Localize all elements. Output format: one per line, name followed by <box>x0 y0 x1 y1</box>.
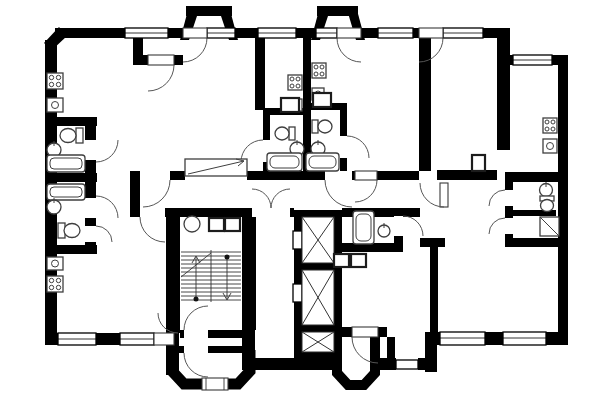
bottom-right-wall <box>485 332 503 345</box>
door-leaf <box>440 183 448 207</box>
bathroom-wall <box>505 238 568 247</box>
duct-box <box>334 254 349 267</box>
hall-wall <box>430 247 438 332</box>
stove <box>543 118 557 133</box>
door-swing-arc <box>337 38 361 62</box>
bottom-middle-wall <box>418 358 425 370</box>
bath-wall <box>45 245 97 254</box>
elevator-door-opening <box>293 284 302 302</box>
kitchen-sink <box>47 98 63 112</box>
bath-wall <box>85 182 96 198</box>
bath-wall <box>85 160 96 173</box>
stairwell-wall <box>208 330 242 338</box>
window <box>396 360 418 369</box>
vestibule-wall <box>208 346 243 353</box>
toilet-tank <box>289 127 295 140</box>
door-swing-arc <box>489 190 505 206</box>
bathroom-wall <box>505 206 513 218</box>
door-opening <box>85 198 96 218</box>
room-wall <box>387 337 395 370</box>
duct-box <box>472 155 485 171</box>
door-leaf <box>148 55 174 65</box>
floor-plan <box>0 0 600 400</box>
door-swing-arc <box>184 353 208 377</box>
door-swing-arc <box>148 65 174 91</box>
door-opening <box>140 208 165 217</box>
door-opening <box>85 226 96 242</box>
door-opening <box>184 330 208 338</box>
stove <box>47 73 63 89</box>
stairwell-wall <box>242 208 256 330</box>
vestibule-top-left-wall <box>174 55 183 65</box>
stove <box>312 63 326 78</box>
bath-wall <box>85 218 96 226</box>
bottom-wall <box>96 333 120 345</box>
hall-wall <box>420 238 445 247</box>
door-opening <box>184 346 208 353</box>
door-opening <box>505 218 513 234</box>
door-swing-arc <box>183 38 207 62</box>
bathtub <box>47 184 85 200</box>
duct-box <box>351 254 366 267</box>
stair-start-dot <box>194 297 199 302</box>
window <box>503 332 546 345</box>
double-door-arc <box>271 189 290 208</box>
bath-wall <box>85 117 96 140</box>
bottom-right-wall <box>546 332 568 345</box>
vestibule-wall <box>242 330 255 370</box>
bay2-side-wall <box>370 337 380 370</box>
door-opening <box>394 216 403 236</box>
elevator-wall <box>294 210 342 217</box>
step-block-wall <box>425 332 437 372</box>
stair-start-dot <box>225 255 230 260</box>
apartment-divider-wall <box>419 38 431 171</box>
corridor-wall <box>290 208 294 217</box>
door-swing-arc <box>96 196 118 218</box>
unit-divider-wall <box>255 38 265 110</box>
door-swing-arc <box>325 180 352 207</box>
duct-box <box>209 218 224 231</box>
bathroom-wall <box>505 182 513 190</box>
bath-cluster-wall <box>340 158 347 172</box>
bathroom-wall <box>505 172 568 182</box>
door-swing-arc <box>96 140 118 162</box>
door-swing-arc <box>489 218 505 234</box>
door-swing-arc <box>355 180 377 202</box>
corridor-wall <box>377 171 419 180</box>
bottom-wall <box>45 333 58 345</box>
terrace-door-leaf <box>154 333 174 345</box>
stove <box>47 276 63 292</box>
double-door-arc <box>252 189 271 208</box>
toilet-bowl <box>64 224 80 238</box>
door-opening <box>497 150 510 172</box>
room-divider-wall <box>497 38 510 150</box>
door-opening <box>85 140 96 160</box>
door-leaf <box>419 28 443 38</box>
duct-box <box>225 218 240 231</box>
room-wall <box>437 170 497 180</box>
right-wall <box>558 55 568 345</box>
elevator-wall <box>294 217 302 231</box>
kitchen-sink <box>543 139 557 153</box>
door-swing-arc <box>140 217 165 242</box>
door-swing-arc <box>96 226 112 242</box>
balcony-door-leaf <box>337 28 361 38</box>
door-swing-arc <box>403 216 423 236</box>
room-wall <box>341 327 352 337</box>
stairs-layer <box>181 250 241 302</box>
balcony-door-leaf <box>183 28 207 38</box>
double-door-opening <box>252 208 290 217</box>
elevator-wall <box>294 325 342 332</box>
top-wall <box>168 28 183 38</box>
corridor-end-wall <box>130 171 140 217</box>
toilet-bowl <box>275 127 289 140</box>
duct-box <box>281 98 299 112</box>
door-opening <box>340 136 347 158</box>
column <box>184 216 200 232</box>
toilet-tank <box>312 120 318 133</box>
door-opening <box>325 171 352 180</box>
bath-cluster-wall <box>263 115 270 140</box>
door-swing-arc <box>184 306 208 330</box>
door-swing-arc <box>347 136 369 158</box>
kitchen-sink <box>47 257 63 270</box>
corridor-wall <box>165 208 245 217</box>
toilet-bowl <box>60 129 76 143</box>
door-opening <box>143 171 170 180</box>
bath-wall <box>45 173 97 182</box>
corridor-wall <box>247 171 325 180</box>
door-swing-arc <box>143 180 170 207</box>
elevator-door-opening <box>293 231 302 249</box>
top-wall <box>235 28 258 38</box>
vestibule-top-left-wall <box>133 55 148 65</box>
stairwell-wall <box>180 330 184 338</box>
door-opening <box>431 171 437 180</box>
corridor-wall <box>170 171 185 180</box>
vestibule-wall <box>179 346 184 353</box>
bath-cluster-wall <box>340 110 347 136</box>
door-leaf <box>355 171 377 180</box>
toilet-tank <box>76 128 83 143</box>
door-leaf <box>352 327 378 337</box>
elevator-wall <box>294 352 342 360</box>
top-wall <box>413 28 419 38</box>
room-wall <box>378 327 387 337</box>
window <box>440 332 485 345</box>
entrance-bay-wall <box>337 368 375 385</box>
floor-plan-page <box>0 0 600 400</box>
toilet-bowl <box>541 200 554 212</box>
door-opening <box>505 190 513 206</box>
toilet-bowl <box>318 120 332 133</box>
stove <box>288 75 302 90</box>
stairwell-wall <box>166 217 180 333</box>
unit-divider-wall <box>303 38 311 172</box>
duct-box <box>313 93 331 107</box>
